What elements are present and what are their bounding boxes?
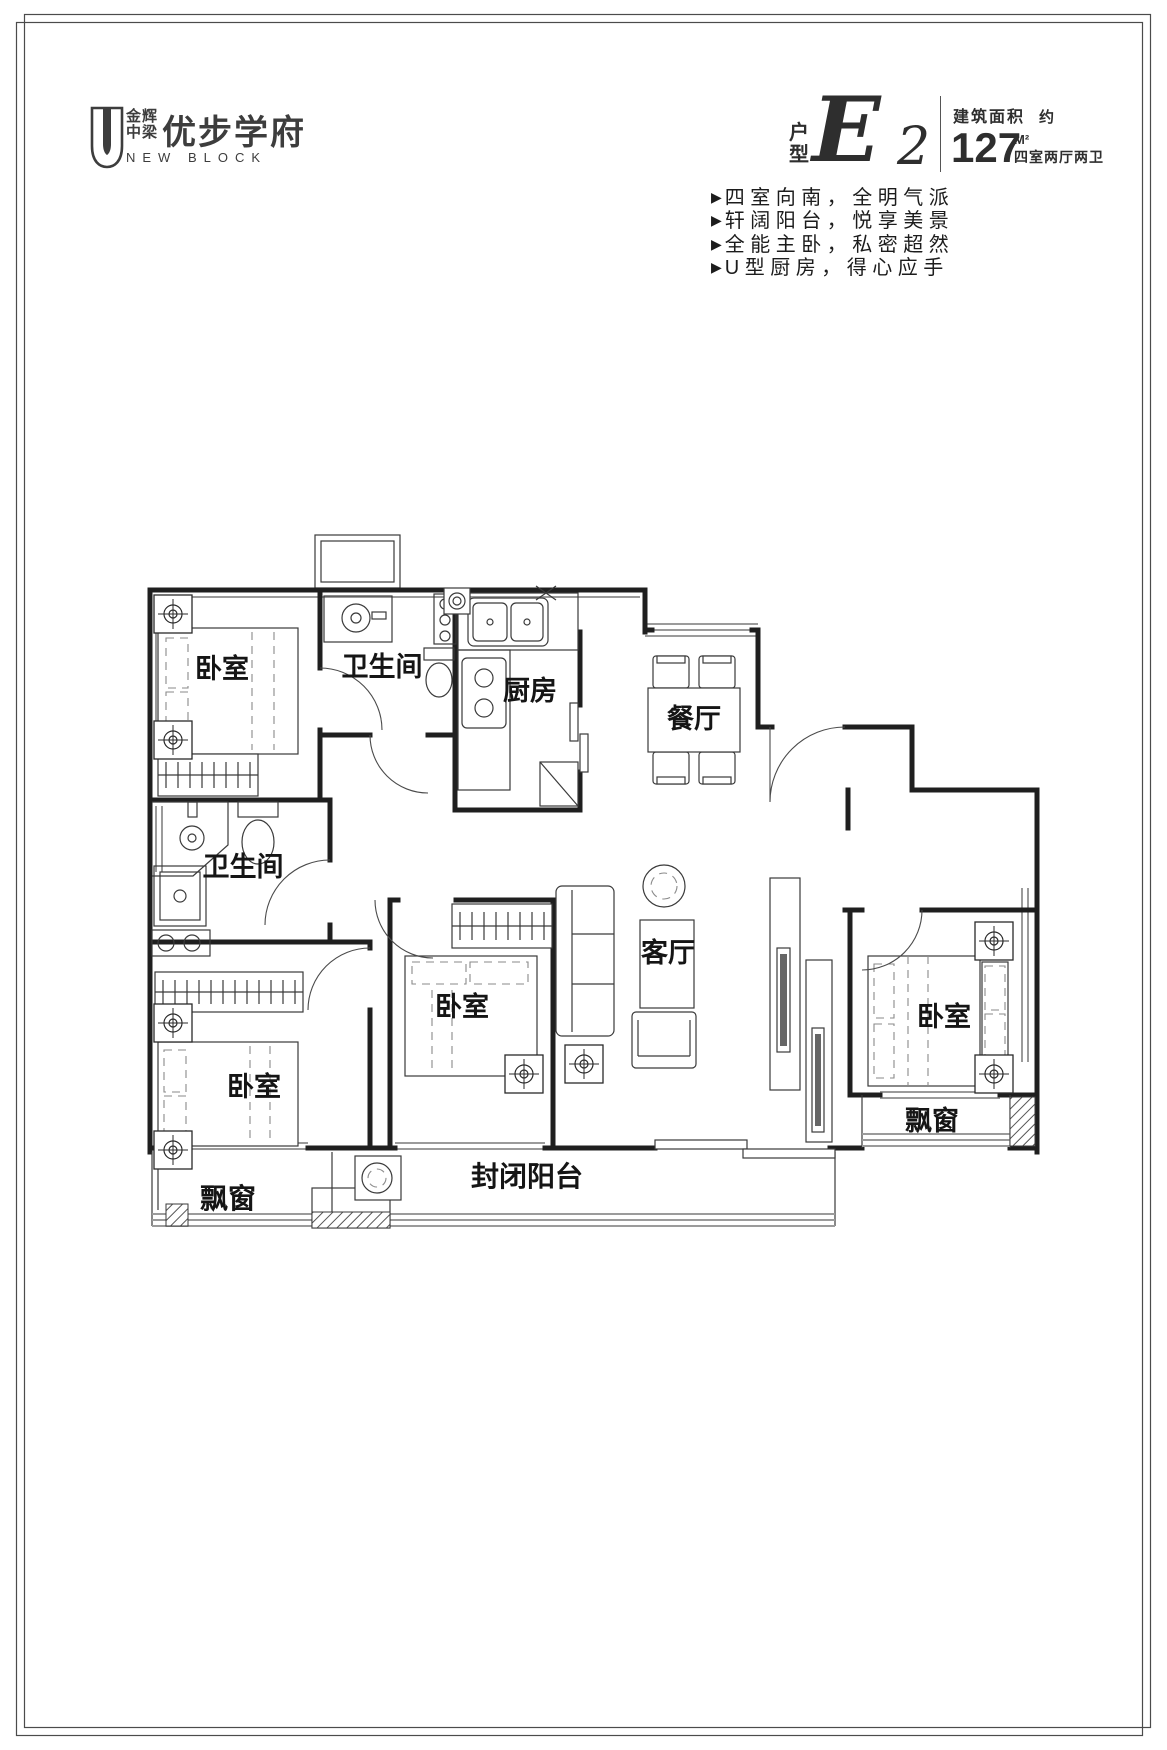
bedroom-center-furniture (405, 904, 552, 1076)
room-label-living: 客厅 (641, 937, 695, 968)
room-label-bath-left: 卫生间 (203, 852, 284, 882)
living-room-furniture (556, 865, 832, 1142)
page-frame (17, 15, 1151, 1736)
room-label-bedroom-top-left: 卧室 (195, 653, 249, 684)
bedroom-bottom-left-furniture (155, 972, 303, 1146)
floorplan-drawing: 卧室 卫生间 厨房 餐厅 卫生间 卧室 客厅 卧室 卧室 飘窗 封闭阳台 飘窗 (0, 0, 1167, 1750)
room-label-kitchen: 厨房 (503, 676, 557, 706)
room-label-bedroom-right: 卧室 (917, 1001, 971, 1032)
room-label-bay-window-right: 飘窗 (905, 1105, 959, 1136)
room-label-dining: 餐厅 (667, 704, 721, 734)
washing-machine (355, 1156, 401, 1200)
room-label-bedroom-center: 卧室 (435, 991, 489, 1022)
room-label-balcony: 封闭阳台 (471, 1160, 583, 1192)
roof-duct (315, 535, 400, 588)
room-label-bay-window-left: 飘窗 (200, 1182, 256, 1214)
room-label-bedroom-bottom-left: 卧室 (227, 1071, 281, 1102)
door-swings (265, 668, 922, 1010)
floorplan-sheet: 金辉 中梁 优步学府 NEW BLOCK 户 型 E 2 建筑面积约 127 M… (0, 0, 1167, 1750)
room-label-bath-top: 卫生间 (342, 652, 423, 682)
